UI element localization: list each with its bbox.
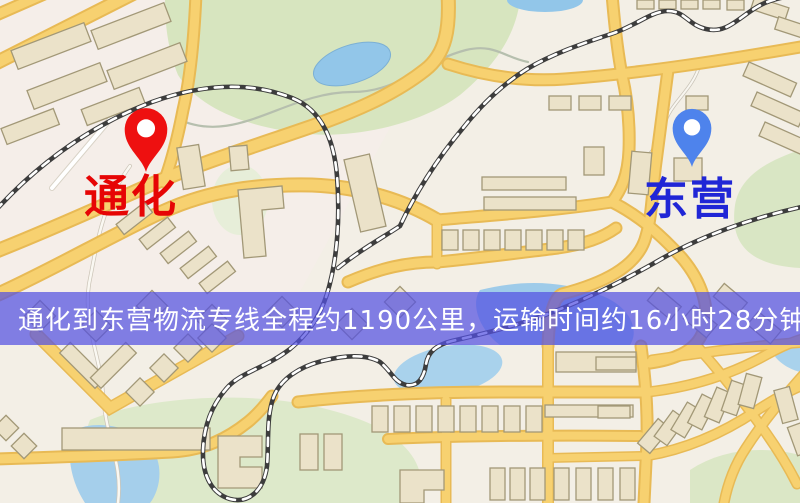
destination-pin-shape	[673, 109, 712, 167]
origin-pin-shape	[125, 108, 168, 172]
destination-pin-hole	[684, 119, 700, 135]
destination-label: 东营	[644, 178, 736, 222]
route-info-banner: 通化到东营物流专线全程约1190公里，运输时间约16小时28分钟.	[0, 292, 800, 345]
destination-pin-icon	[670, 107, 714, 167]
origin-label: 通化	[84, 174, 178, 219]
map-background	[0, 0, 800, 503]
origin-pin-hole	[137, 119, 155, 137]
route-map: 通化 东营 通化到东营物流专线全程约1190公里，运输时间约16小时28分钟.	[0, 0, 800, 503]
origin-pin-icon	[122, 106, 170, 172]
route-info-text: 通化到东营物流专线全程约1190公里，运输时间约16小时28分钟.	[18, 300, 800, 337]
